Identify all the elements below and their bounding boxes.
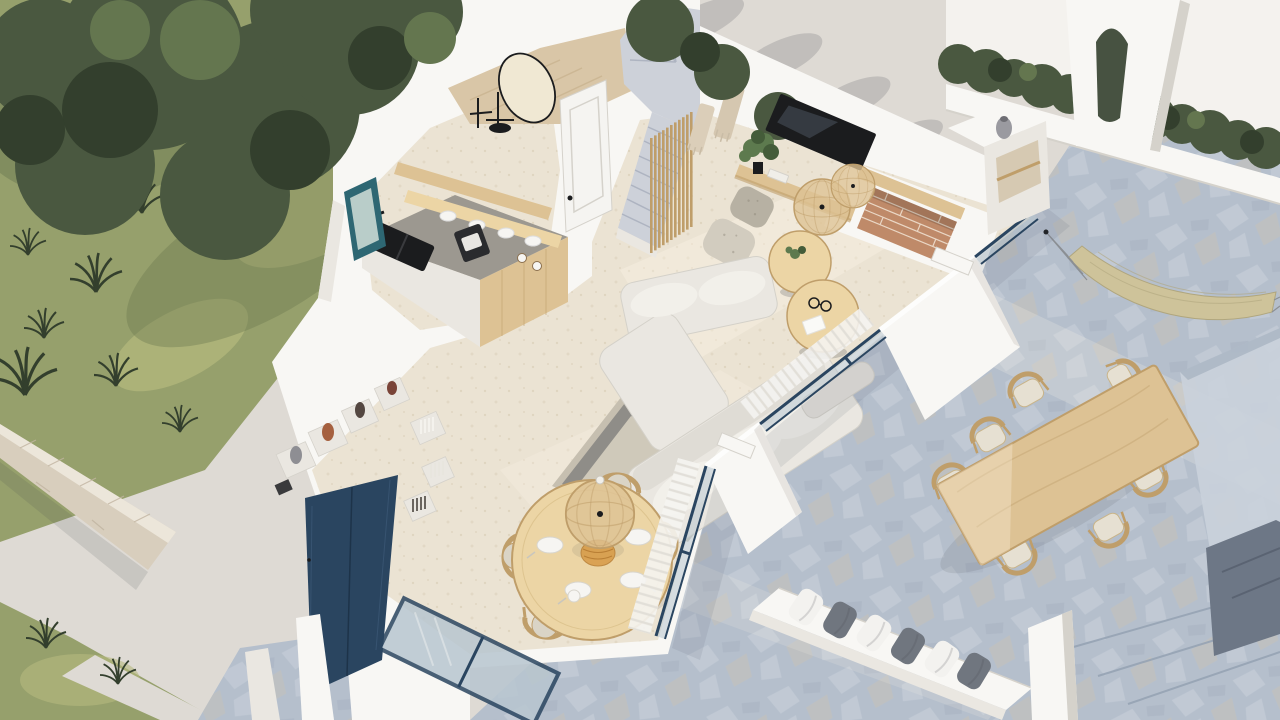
interior-door <box>560 80 612 232</box>
clay-vase <box>387 381 397 395</box>
coffee-cup <box>533 262 542 271</box>
villa-floorplan-render <box>0 0 1280 720</box>
rattan-dome-pendant <box>566 480 634 548</box>
glass-decanter <box>568 590 580 602</box>
rattan-pendant-lamp <box>831 164 875 208</box>
terracotta-vase <box>322 423 334 441</box>
plate-stack <box>440 211 456 221</box>
dark-vase <box>355 402 365 418</box>
render-stage <box>0 0 1280 720</box>
black-basin <box>489 123 511 133</box>
coffee-cup <box>518 254 527 263</box>
grey-vase <box>290 446 302 464</box>
pendant-cap <box>596 476 604 484</box>
door-handle <box>568 196 573 201</box>
